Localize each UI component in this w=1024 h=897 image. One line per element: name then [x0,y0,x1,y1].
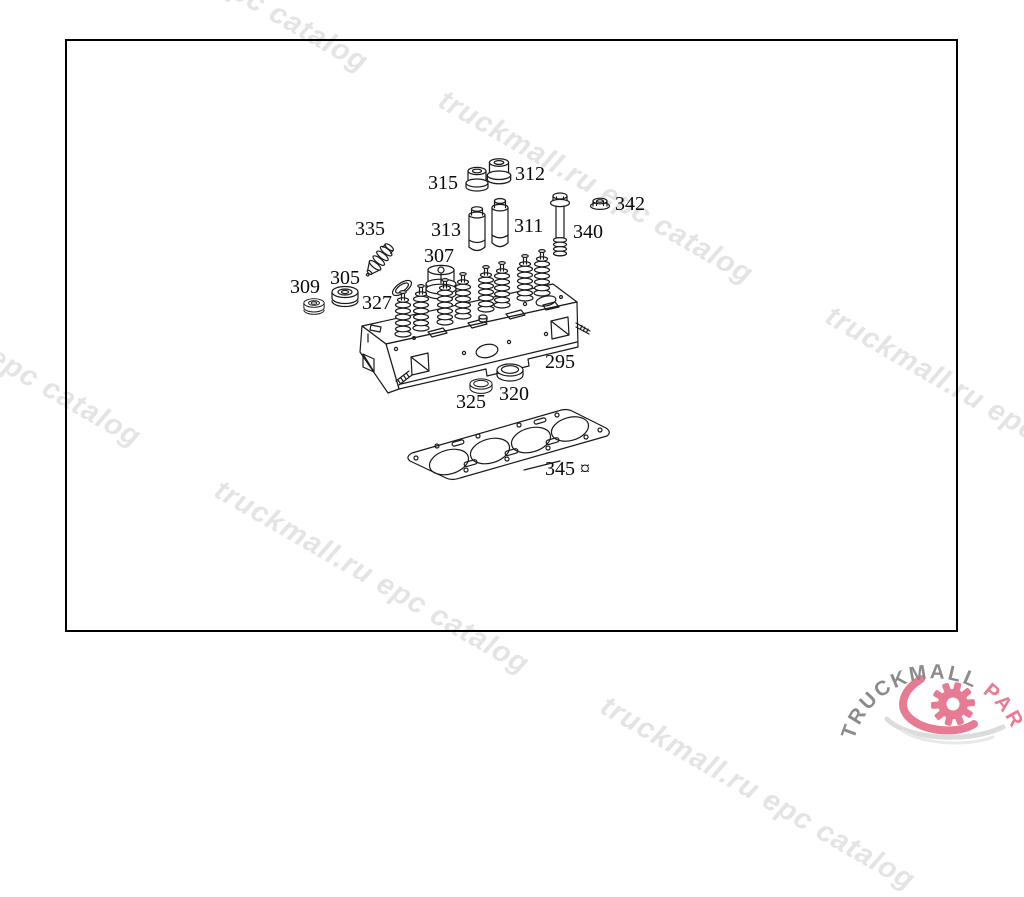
part-311-guide [492,199,508,247]
part-305-seal [332,287,358,307]
part-315-seal [466,167,488,191]
part-313-guide [469,207,485,251]
parts-diagram-drawing: TRUCKMALL PARTS [0,0,1024,750]
part-342-nut [591,198,610,209]
part-345-gasket [408,410,609,480]
part-325-plug [470,379,492,393]
part-312-seal [487,159,510,184]
part-335-plug [361,241,396,280]
cylinder-head [360,250,590,393]
part-340-bolt [551,193,570,256]
page: { "watermark": { "text": "truckmall.ru e… [0,0,1024,750]
part-320-plug [497,364,523,381]
leader-line-345 [524,461,560,470]
part-309-seal [304,299,324,315]
